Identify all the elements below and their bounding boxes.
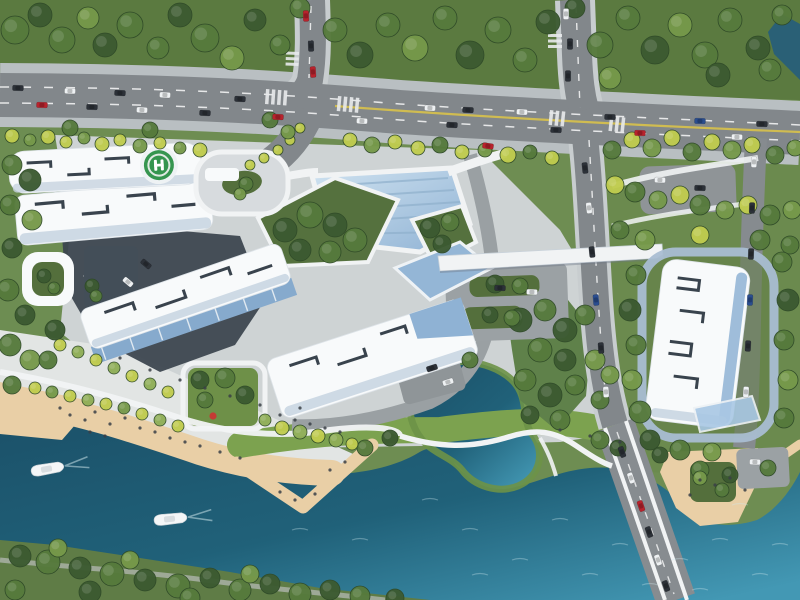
tree	[750, 230, 770, 250]
person	[138, 426, 141, 429]
tree	[82, 394, 94, 406]
tree	[15, 305, 35, 325]
tree	[723, 141, 741, 159]
tree	[565, 375, 585, 395]
car	[756, 121, 767, 127]
loop-walkway	[288, 172, 318, 176]
tree	[500, 147, 516, 163]
tree	[121, 551, 139, 569]
car	[748, 248, 754, 259]
tree	[716, 201, 734, 219]
tree	[220, 46, 244, 70]
red-sculpture	[209, 412, 216, 419]
tree	[671, 186, 689, 204]
car	[36, 102, 47, 108]
car	[310, 66, 316, 77]
tree	[382, 430, 398, 446]
car	[694, 185, 705, 191]
tree	[329, 433, 343, 447]
tree	[664, 130, 680, 146]
tree	[69, 557, 91, 579]
tree	[154, 137, 166, 149]
tree	[774, 330, 794, 350]
tree	[512, 278, 528, 294]
tree	[319, 241, 341, 263]
tree	[95, 137, 109, 151]
tree	[311, 429, 325, 443]
tree	[690, 195, 710, 215]
tree	[553, 318, 577, 342]
tree	[343, 133, 357, 147]
tree	[626, 265, 646, 285]
tree	[587, 32, 613, 58]
person	[88, 430, 91, 433]
car	[654, 177, 665, 183]
tree	[0, 334, 21, 356]
tree	[0, 195, 20, 215]
tree	[174, 142, 186, 154]
person	[103, 434, 106, 437]
tree	[550, 410, 570, 430]
car	[731, 134, 742, 140]
tree	[5, 580, 25, 600]
tree	[777, 289, 799, 311]
tree	[48, 282, 60, 294]
person	[728, 476, 731, 479]
tree	[273, 218, 297, 242]
person	[218, 450, 221, 453]
tree	[49, 27, 75, 53]
tree	[114, 134, 126, 146]
entrance-canopy	[205, 168, 239, 181]
tree	[259, 153, 269, 163]
car	[12, 85, 23, 91]
tree	[49, 539, 67, 557]
tree	[22, 210, 42, 230]
tree	[591, 431, 609, 449]
person	[338, 430, 341, 433]
tree	[783, 201, 800, 219]
person	[153, 430, 156, 433]
tree	[134, 569, 156, 591]
person	[108, 422, 111, 425]
tree	[528, 338, 552, 362]
tree	[441, 213, 459, 231]
east-building-block	[642, 252, 774, 438]
tree	[37, 269, 51, 283]
tree	[241, 565, 259, 583]
tree	[118, 402, 130, 414]
tree	[722, 467, 738, 483]
tree	[641, 36, 669, 64]
person	[323, 426, 326, 429]
person	[238, 456, 241, 459]
tree	[781, 236, 799, 254]
car	[516, 109, 527, 115]
tree	[433, 235, 451, 253]
crosswalk-north-road	[286, 52, 299, 66]
car	[743, 386, 749, 397]
person	[198, 444, 201, 447]
tree	[133, 139, 147, 153]
tree	[100, 398, 112, 410]
tree	[1, 16, 29, 44]
tree	[45, 320, 65, 340]
tree	[691, 226, 709, 244]
tree	[538, 383, 562, 407]
car	[462, 107, 473, 113]
car	[745, 340, 751, 351]
tree	[117, 12, 143, 38]
car	[593, 294, 600, 305]
tree	[281, 125, 295, 139]
tree	[718, 8, 742, 32]
person	[93, 410, 96, 413]
tree	[2, 155, 22, 175]
tree	[388, 135, 402, 149]
tree	[402, 35, 428, 61]
car	[424, 105, 435, 111]
tree	[346, 438, 358, 450]
tree	[462, 352, 478, 368]
person	[148, 368, 151, 371]
tree	[3, 376, 21, 394]
tree	[456, 41, 484, 69]
person	[228, 394, 231, 397]
tree	[289, 239, 311, 261]
tree	[760, 205, 780, 225]
tree	[28, 3, 52, 27]
car	[64, 88, 75, 94]
tree	[320, 580, 340, 600]
car	[234, 96, 245, 102]
tree	[643, 139, 661, 157]
tree	[606, 176, 624, 194]
tree	[575, 305, 595, 325]
tree	[41, 130, 55, 144]
tree	[323, 18, 347, 42]
car	[563, 9, 569, 20]
tree	[9, 545, 31, 567]
tree	[649, 191, 667, 209]
car	[582, 162, 589, 174]
tree	[622, 370, 642, 390]
car	[747, 294, 753, 305]
tree	[715, 483, 729, 497]
car	[567, 39, 573, 50]
tree	[244, 9, 266, 31]
tree	[704, 134, 720, 150]
tree	[154, 414, 166, 426]
car	[199, 110, 210, 116]
person	[178, 378, 181, 381]
tree	[293, 425, 307, 439]
tree	[521, 406, 539, 424]
tree	[603, 141, 621, 159]
person	[293, 418, 296, 421]
tree	[482, 307, 498, 323]
tree	[197, 392, 213, 408]
tree	[455, 145, 469, 159]
car	[751, 156, 757, 167]
tree	[273, 145, 283, 155]
car	[308, 40, 314, 51]
car	[634, 130, 645, 136]
tree	[601, 366, 619, 384]
person	[713, 483, 716, 486]
tree	[108, 362, 120, 374]
tree	[144, 378, 156, 390]
person	[203, 386, 206, 389]
tree	[668, 13, 692, 37]
tree	[772, 5, 792, 25]
tree	[534, 299, 556, 321]
tree	[523, 145, 537, 159]
person	[118, 356, 121, 359]
tree	[706, 63, 730, 87]
tree	[744, 137, 760, 153]
tree	[72, 346, 84, 358]
tree	[652, 447, 668, 463]
tree	[357, 440, 373, 456]
tree	[625, 182, 645, 202]
aerial-rendering-canvas: { "scene": { "title": "Aerial masterplan…	[0, 0, 800, 600]
tree	[100, 562, 124, 586]
tree	[536, 10, 560, 34]
person	[168, 436, 171, 439]
tree	[376, 13, 400, 37]
person	[308, 422, 311, 425]
crosswalk-ne-road	[548, 34, 562, 48]
car	[598, 342, 604, 353]
tree	[20, 350, 40, 370]
tree	[514, 369, 536, 391]
tree	[703, 443, 721, 461]
tree	[168, 3, 192, 27]
tree	[54, 339, 66, 351]
tree	[193, 143, 207, 157]
tree	[432, 137, 448, 153]
tree	[39, 351, 57, 369]
tree	[759, 59, 781, 81]
tree	[172, 420, 184, 432]
tree	[162, 386, 174, 398]
car	[694, 118, 705, 124]
person	[58, 406, 61, 409]
tree	[90, 290, 102, 302]
tree	[364, 137, 380, 153]
tree	[126, 370, 138, 382]
person	[588, 434, 591, 437]
tree	[191, 371, 209, 389]
tree	[234, 188, 246, 200]
person	[68, 413, 71, 416]
tree	[629, 401, 651, 423]
tree	[760, 460, 776, 476]
tree	[260, 574, 280, 594]
tree	[420, 218, 440, 238]
tree	[611, 221, 629, 239]
crosswalk-ne-west	[548, 110, 565, 127]
tree	[616, 6, 640, 30]
person	[743, 488, 746, 491]
tree	[343, 228, 367, 252]
person	[83, 418, 86, 421]
tree	[29, 382, 41, 394]
tree	[554, 349, 576, 371]
tree	[774, 408, 794, 428]
car	[586, 202, 593, 214]
car	[565, 71, 571, 82]
car	[603, 386, 609, 397]
tree	[200, 568, 220, 588]
tree	[411, 141, 425, 155]
car	[272, 114, 283, 120]
tree	[90, 354, 102, 366]
tree	[787, 140, 800, 156]
car	[303, 10, 309, 21]
tree	[323, 213, 347, 237]
tree	[270, 35, 290, 55]
car	[604, 114, 615, 120]
tree	[599, 67, 621, 89]
tree	[635, 230, 655, 250]
car	[526, 289, 537, 295]
tree	[245, 160, 255, 170]
tree	[2, 238, 22, 258]
person	[558, 428, 561, 431]
tree	[64, 390, 76, 402]
tree	[0, 279, 19, 301]
person	[183, 440, 186, 443]
tree	[215, 368, 235, 388]
person	[688, 493, 691, 496]
tree	[670, 440, 690, 460]
person	[293, 498, 296, 501]
person	[313, 492, 316, 495]
car	[136, 107, 147, 113]
masterplan-rendering	[0, 0, 800, 600]
tree	[191, 24, 219, 52]
tree	[93, 33, 117, 57]
tree	[147, 37, 169, 59]
tree	[62, 120, 78, 136]
tree	[79, 581, 101, 600]
tree	[626, 335, 646, 355]
tree	[19, 169, 41, 191]
car	[749, 202, 755, 213]
tree	[766, 146, 784, 164]
car	[494, 285, 505, 291]
tree	[46, 386, 58, 398]
tree	[142, 122, 158, 138]
person	[298, 406, 301, 409]
tree	[513, 48, 537, 72]
tree	[5, 129, 19, 143]
helipad-h-crossbar	[154, 163, 164, 166]
tree	[77, 7, 99, 29]
person	[618, 440, 621, 443]
tree	[640, 430, 660, 450]
tree	[778, 370, 798, 390]
tree	[136, 408, 148, 420]
person	[698, 478, 701, 481]
tree	[60, 136, 72, 148]
tree	[693, 471, 707, 485]
car	[550, 127, 561, 133]
tree	[78, 132, 90, 144]
person	[278, 413, 281, 416]
person	[278, 490, 281, 493]
tree	[485, 17, 511, 43]
car	[114, 90, 125, 96]
tree	[347, 42, 373, 68]
car	[356, 118, 367, 124]
tree	[24, 134, 36, 146]
person	[328, 468, 331, 471]
tree	[545, 151, 559, 165]
car	[589, 246, 596, 258]
tree	[236, 386, 254, 404]
tree	[433, 6, 457, 30]
tree	[295, 123, 305, 133]
car	[749, 459, 760, 465]
tree	[297, 202, 323, 228]
tree	[772, 252, 792, 272]
tree	[746, 36, 770, 60]
person	[123, 416, 126, 419]
tree	[275, 421, 289, 435]
person	[343, 460, 346, 463]
tree	[683, 143, 701, 161]
tree	[259, 414, 271, 426]
person	[258, 403, 261, 406]
tree	[619, 299, 641, 321]
car	[446, 122, 457, 128]
car	[159, 92, 170, 98]
car	[86, 104, 97, 110]
tree	[504, 310, 520, 326]
